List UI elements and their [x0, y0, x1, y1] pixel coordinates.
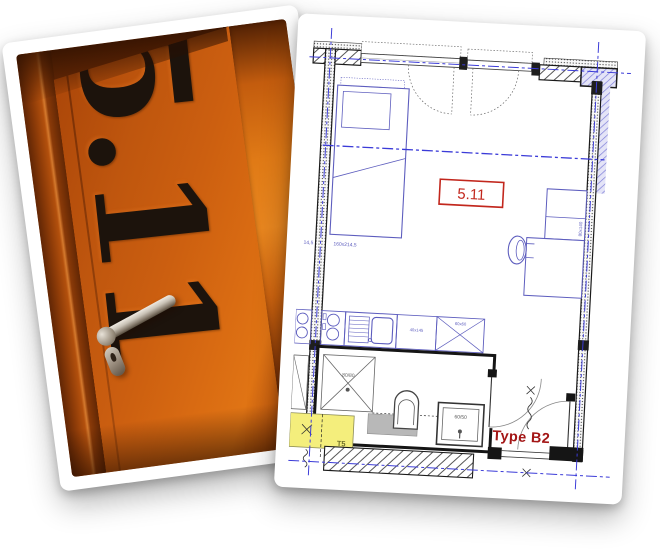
neighbor-hob: [294, 309, 312, 344]
room-number-box: 5.11: [439, 179, 504, 207]
type-label: Type B2: [492, 428, 550, 447]
photo-collage: 5.11: [0, 0, 660, 550]
desk: [524, 188, 587, 298]
unit-dim-label: 60x60: [455, 321, 467, 327]
sink: [344, 312, 397, 349]
bed-dim-left-label: 14,5: [303, 240, 313, 247]
top-wall: [313, 39, 618, 88]
counter-dim-label: 40x145: [410, 327, 425, 333]
basin-dim-label: 60/50: [454, 414, 467, 421]
room-number-label: 5.11: [457, 186, 486, 204]
mullion-block: [531, 62, 540, 75]
washbasin: [436, 402, 484, 446]
bed-dim-label: 160x214,5: [333, 241, 357, 248]
shower-dim-label: 80/80: [342, 372, 355, 379]
floor-plan-photo: 14,5 160x214,5 80x140: [274, 13, 646, 505]
balcony-door-swings: [406, 65, 519, 118]
entry-doors: [483, 369, 588, 480]
floor-plan-drawing: 14,5 160x214,5 80x140: [287, 27, 632, 491]
desk-dim-label: 80x140: [578, 221, 584, 236]
shower: [321, 355, 375, 412]
mullion-block: [459, 57, 468, 70]
bed: [330, 77, 410, 238]
